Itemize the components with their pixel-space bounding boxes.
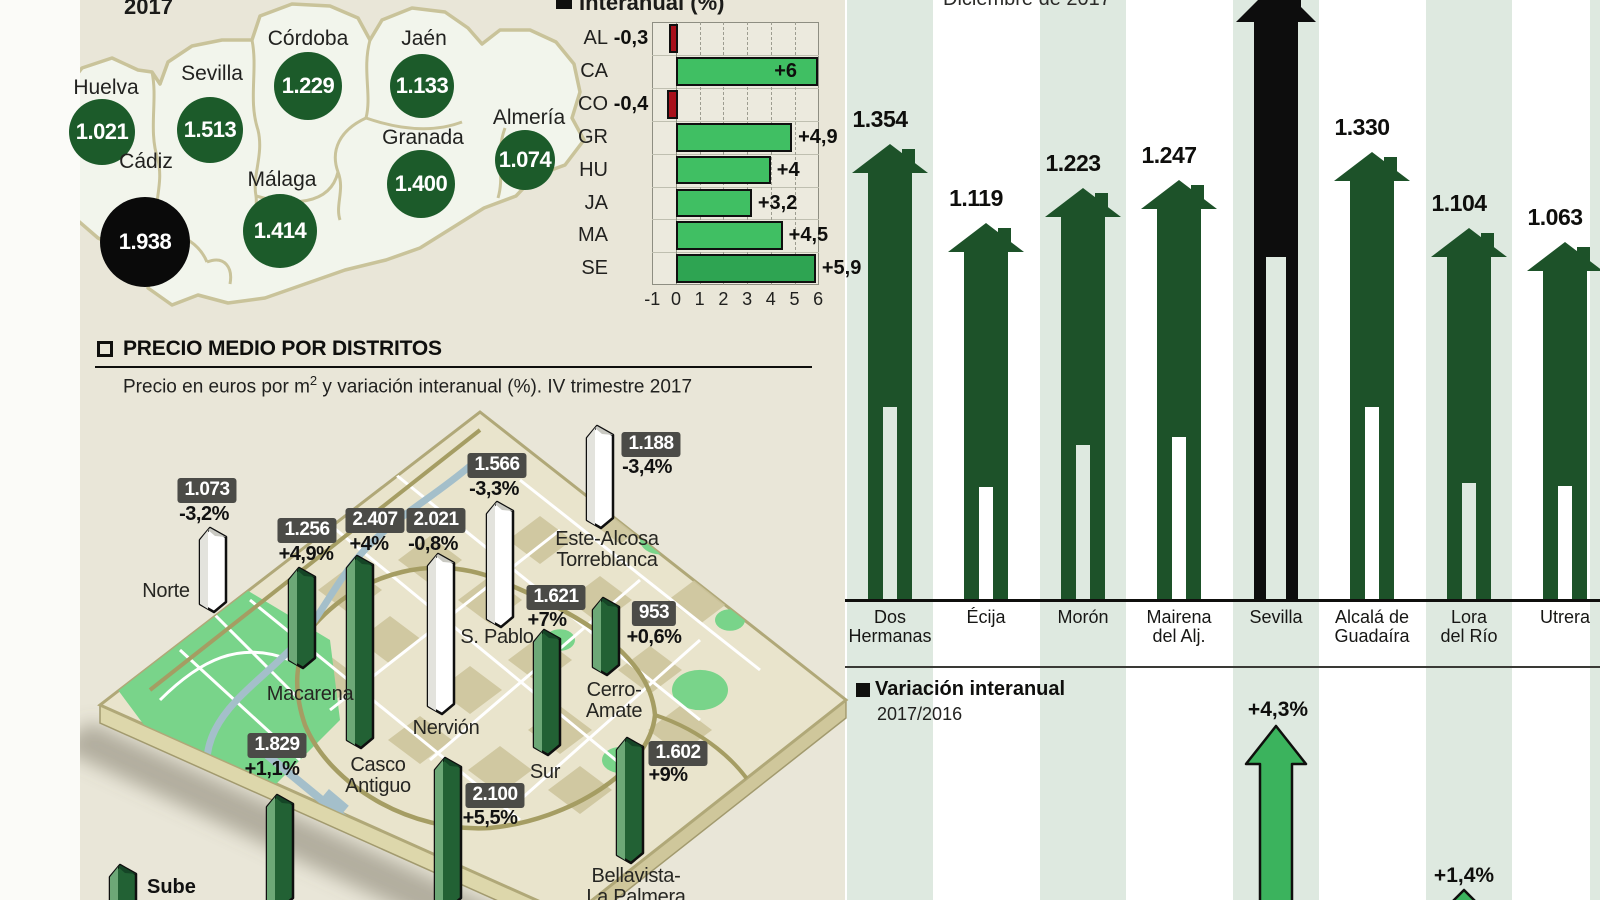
district-pct-label: +4,9% <box>279 543 334 566</box>
district-name-label: Bellavista-La Palmera <box>586 866 685 900</box>
house-arrow <box>1236 0 1316 600</box>
interanual-row-label: AL <box>568 27 608 50</box>
district-name-label: Norte <box>142 581 189 602</box>
district-name-line: Norte <box>142 581 189 602</box>
district-name-label: Sur <box>530 762 560 783</box>
province-bubble: 1.513 <box>177 97 243 163</box>
district-bar <box>617 738 643 863</box>
province-value: 1.938 <box>119 229 172 255</box>
town-name-line: Utrera <box>1540 608 1590 627</box>
chart-baseline <box>845 599 1600 602</box>
town-value-label: 1.354 <box>852 106 907 133</box>
district-name-line: Casco <box>345 755 411 776</box>
province-value: 1.074 <box>499 147 552 173</box>
interanual-value: +4,9 <box>798 126 837 149</box>
town-value-label: 1.247 <box>1141 142 1196 169</box>
district-value-chip: 1.188 <box>621 432 680 457</box>
town-name-label: DosHermanas <box>848 608 931 646</box>
town-name-line: Morón <box>1057 608 1108 627</box>
town-name-line: Lora <box>1440 608 1497 627</box>
province-bubble: 1.414 <box>243 194 317 268</box>
section-square-icon <box>97 341 113 357</box>
x-axis-tick: 2 <box>718 289 728 310</box>
town-name-line: Sevilla <box>1249 608 1302 627</box>
sevilla-variation-arrow <box>1246 726 1306 900</box>
district-name-line: Sur <box>530 762 560 783</box>
section-rule <box>95 366 812 368</box>
district-pct-label: -3,4% <box>622 456 672 479</box>
interanual-row-label: GR <box>568 126 608 149</box>
province-label: Córdoba <box>268 27 349 51</box>
interanual-bar <box>667 90 678 119</box>
district-pct-label: +5,5% <box>463 807 518 830</box>
district-bar <box>534 630 560 755</box>
district-value-chip: 1.073 <box>177 478 236 503</box>
district-value-chip: 1.829 <box>247 733 306 758</box>
town-name-label: Sevilla <box>1249 608 1302 627</box>
district-pct-label: +7% <box>527 609 566 632</box>
variacion-legend-label: Variación interanual <box>875 678 1065 701</box>
district-name-line: La Palmera <box>586 887 685 900</box>
x-axis-tick: 6 <box>813 289 823 310</box>
province-value: 1.229 <box>282 73 335 99</box>
province-bubble: 1.133 <box>390 54 454 118</box>
province-label: Jaén <box>401 27 447 51</box>
district-value-chip: 1.602 <box>648 741 707 766</box>
province-label: Granada <box>382 126 464 150</box>
town-name-line: Mairena <box>1146 608 1211 627</box>
province-label: Almería <box>493 106 565 130</box>
sube-legend-bar-icon <box>105 862 145 900</box>
town-name-label: Morón <box>1057 608 1108 627</box>
district-name-line: Este-Alcosa <box>555 529 658 550</box>
interanual-bar <box>676 123 792 152</box>
interanual-value: +4,5 <box>789 224 828 247</box>
variacion-legend-square-icon <box>856 683 870 697</box>
district-bar <box>487 502 513 627</box>
province-value: 1.021 <box>76 119 129 145</box>
interanual-row-label: CO <box>568 93 608 116</box>
town-value-label: 1.119 <box>949 185 1003 212</box>
interanual-bar <box>676 254 816 283</box>
district-name-label: Macarena <box>267 684 354 705</box>
district-value-chip: 1.566 <box>467 453 526 478</box>
province-bubble: 1.400 <box>387 150 455 218</box>
interanual-bar <box>676 156 771 185</box>
district-name-label: S. Pablo <box>460 627 533 648</box>
interanual-value: +4 <box>777 159 800 182</box>
towns-house-arrow-chart <box>845 0 1600 900</box>
house-arrow <box>1141 180 1217 600</box>
province-value: 1.400 <box>395 171 448 197</box>
province-label: Málaga <box>248 168 317 192</box>
district-name-line: Macarena <box>267 684 354 705</box>
district-name-label: Nervión <box>413 718 480 739</box>
district-pct-label: -3,2% <box>179 503 229 526</box>
district-name-label: Este-AlcosaTorreblanca <box>555 529 658 571</box>
district-pct-label: -3,3% <box>469 478 519 501</box>
interanual-row-label: HU <box>568 159 608 182</box>
lora-variation-arrow-tip <box>1446 890 1482 900</box>
province-bubble: 1.938 <box>100 197 190 287</box>
house-arrow <box>852 144 928 600</box>
infographic-canvas: 2017 Interanual (%) Diciembre de 2017 Hu… <box>0 0 1600 900</box>
province-label: Sevilla <box>181 62 243 86</box>
x-axis-tick: 1 <box>695 289 705 310</box>
town-value-label: 1.330 <box>1334 114 1389 141</box>
district-bar <box>267 795 293 900</box>
town-name-label: Mairenadel Alj. <box>1146 608 1211 646</box>
district-name-line: Amate <box>586 701 642 722</box>
town-value-label: 1.063 <box>1527 204 1582 231</box>
province-value: 1.133 <box>396 73 449 99</box>
interanual-value: +3,2 <box>758 192 797 215</box>
house-arrow <box>948 223 1024 600</box>
interanual-bar <box>669 24 678 53</box>
district-value-chip: 953 <box>632 601 676 626</box>
district-bar <box>593 598 619 675</box>
town-name-line: Alcalá de <box>1334 608 1409 627</box>
district-value-chip: 2.407 <box>345 508 404 533</box>
interanual-value: -0,4 <box>610 93 652 116</box>
town-name-line: del Río <box>1440 627 1497 646</box>
interanual-value: -0,3 <box>610 27 652 50</box>
district-bar <box>289 568 315 668</box>
district-bar <box>347 556 373 748</box>
district-value-chip: 2.021 <box>406 508 465 533</box>
district-value-chip: 2.100 <box>465 783 524 808</box>
province-bubble: 1.229 <box>274 52 342 120</box>
town-value-label: 1.223 <box>1045 150 1100 177</box>
district-value-chip: 1.621 <box>526 585 585 610</box>
sube-legend-label: Sube <box>147 876 196 899</box>
town-name-label: Alcalá deGuadaíra <box>1334 608 1409 646</box>
district-pct-label: +1,1% <box>245 758 300 781</box>
province-label: Cádiz <box>119 150 173 174</box>
town-name-line: del Alj. <box>1146 627 1211 646</box>
town-value-label: 1.104 <box>1431 190 1486 217</box>
left-margin-strip <box>0 0 80 900</box>
district-bar <box>200 528 226 612</box>
province-label: Huelva <box>73 76 138 100</box>
interanual-value: +6 <box>774 60 797 83</box>
district-pct-label: -0,8% <box>408 533 458 556</box>
town-name-line: Guadaíra <box>1334 627 1409 646</box>
town-name-line: Dos <box>848 608 931 627</box>
district-pct-label: +4% <box>349 533 388 556</box>
district-name-line: Bellavista- <box>586 866 685 887</box>
district-name-line: Torreblanca <box>555 550 658 571</box>
district-name-line: Cerro- <box>586 680 642 701</box>
province-value: 1.513 <box>184 117 237 143</box>
town-name-label: Loradel Río <box>1440 608 1497 646</box>
house-arrow <box>1527 242 1600 600</box>
house-arrow <box>1045 188 1121 600</box>
province-value: 1.414 <box>254 218 307 244</box>
lora-variation-value: +1,4% <box>1434 864 1494 888</box>
district-bar <box>587 426 613 528</box>
district-value-chip: 1.256 <box>277 518 336 543</box>
town-name-label: Écija <box>966 608 1005 627</box>
variacion-period-label: 2017/2016 <box>877 704 962 725</box>
district-name-line: Antiguo <box>345 776 411 797</box>
district-pct-label: +9% <box>648 764 687 787</box>
interanual-bar <box>676 221 783 250</box>
district-pct-label: +0,6% <box>627 626 682 649</box>
town-name-label: Utrera <box>1540 608 1590 627</box>
x-axis-tick: 3 <box>742 289 752 310</box>
sevilla-variation-value: +4,3% <box>1248 698 1308 722</box>
district-name-label: CascoAntiguo <box>345 755 411 797</box>
district-name-line: Nervión <box>413 718 480 739</box>
interanual-row-label: SE <box>568 257 608 280</box>
interanual-row-label: CA <box>568 60 608 83</box>
x-axis-tick: 5 <box>789 289 799 310</box>
interanual-row-label: MA <box>568 224 608 247</box>
province-bubble: 1.074 <box>495 130 555 190</box>
x-axis-tick: 0 <box>671 289 681 310</box>
district-name-label: Cerro-Amate <box>586 680 642 722</box>
section-divider <box>845 666 1600 668</box>
interanual-bar <box>676 189 752 218</box>
district-bar <box>110 865 136 900</box>
town-name-line: Écija <box>966 608 1005 627</box>
interanual-row-label: JA <box>568 192 608 215</box>
district-bar <box>428 554 454 714</box>
x-axis-tick: -1 <box>644 289 660 310</box>
x-axis-tick: 4 <box>766 289 776 310</box>
town-name-line: Hermanas <box>848 627 931 646</box>
house-arrow <box>1431 228 1507 600</box>
house-arrow <box>1334 152 1410 600</box>
districts-section-title: PRECIO MEDIO POR DISTRITOS <box>123 337 442 361</box>
district-name-line: S. Pablo <box>460 627 533 648</box>
district-bar <box>435 758 461 900</box>
